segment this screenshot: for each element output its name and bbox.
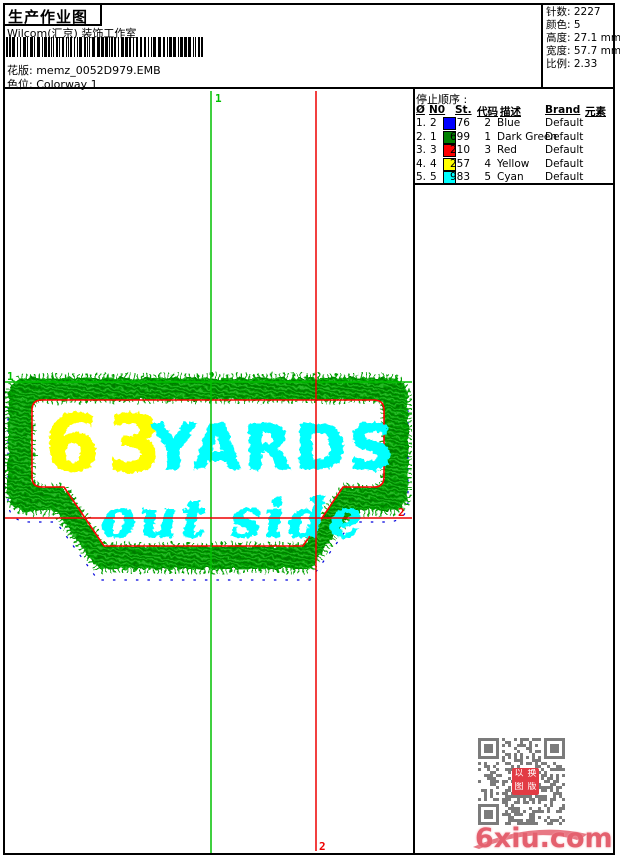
row-index: 1.: [416, 117, 426, 129]
row-stitches: 76: [449, 117, 470, 129]
row-code: 3: [479, 144, 491, 156]
row-needle: 5: [430, 171, 437, 183]
row-code: 5: [479, 171, 491, 183]
design-text-bottom: out side: [101, 489, 366, 550]
row-description: Cyan: [497, 171, 524, 183]
col-hash: Ø: [416, 104, 425, 116]
row-index: 4.: [416, 158, 426, 170]
watermark-text: 6xiu.com: [475, 823, 613, 854]
row-code: 1: [479, 131, 491, 143]
row-index: 3.: [416, 144, 426, 156]
production-worksheet: 生产作业图 Wilcom(汇京) 装饰工作室 花版: memz_0052D979…: [0, 0, 620, 860]
end-marker-right: 2: [398, 506, 405, 519]
row-needle: 3: [430, 144, 437, 156]
end-marker-bottom: 2: [319, 840, 326, 853]
stamp-char: 版: [526, 782, 538, 794]
row-brand: Default: [545, 131, 583, 143]
row-stitches: 257: [449, 158, 470, 170]
row-stitches: 210: [449, 144, 470, 156]
row-description: Yellow: [497, 158, 529, 170]
row-index: 5.: [416, 171, 426, 183]
row-stitches: 699: [449, 131, 470, 143]
red-stamp: 以换图版: [512, 768, 539, 795]
stat-row: 颜色: 5: [546, 19, 618, 32]
stats-divider: [541, 5, 543, 87]
barcode: [6, 37, 206, 57]
row-index: 2.: [416, 131, 426, 143]
panel-divider: [413, 89, 415, 853]
start-marker-top: 1: [215, 92, 222, 105]
stat-row: 宽度: 57.7 mm: [546, 45, 618, 58]
stats-box: 针数: 2227颜色: 5高度: 27.1 mm宽度: 57.7 mm比例: 2…: [546, 6, 618, 71]
col-stitches: St.: [455, 104, 472, 116]
row-brand: Default: [545, 171, 583, 183]
col-n0: N0: [429, 104, 445, 116]
lettering-group: 63 YARDS out side: [45, 400, 397, 550]
row-description: Red: [497, 144, 517, 156]
row-description: Blue: [497, 117, 520, 129]
stat-row: 比例: 2.33: [546, 58, 618, 71]
row-needle: 4: [430, 158, 437, 170]
row-code: 4: [479, 158, 491, 170]
row-needle: 2: [430, 117, 437, 129]
row-needle: 1: [430, 131, 437, 143]
page-title: 生产作业图: [5, 5, 102, 26]
design-text-word: YARDS: [150, 411, 397, 484]
stat-row: 针数: 2227: [546, 6, 618, 19]
row-code: 2: [479, 117, 491, 129]
row-stitches: 983: [449, 171, 470, 183]
stamp-char: 换: [526, 769, 538, 781]
row-brand: Default: [545, 158, 583, 170]
stamp-char: 以: [513, 769, 525, 781]
page-frame: 生产作业图 Wilcom(汇京) 装饰工作室 花版: memz_0052D979…: [3, 3, 615, 855]
stat-row: 高度: 27.1 mm: [546, 32, 618, 45]
start-marker-left: 1: [7, 370, 14, 383]
stamp-char: 图: [513, 782, 525, 794]
row-brand: Default: [545, 144, 583, 156]
design-canvas: 63 YARDS out side 1 1 2 2: [5, 89, 412, 853]
col-brand: Brand: [545, 104, 580, 116]
row-brand: Default: [545, 117, 583, 129]
